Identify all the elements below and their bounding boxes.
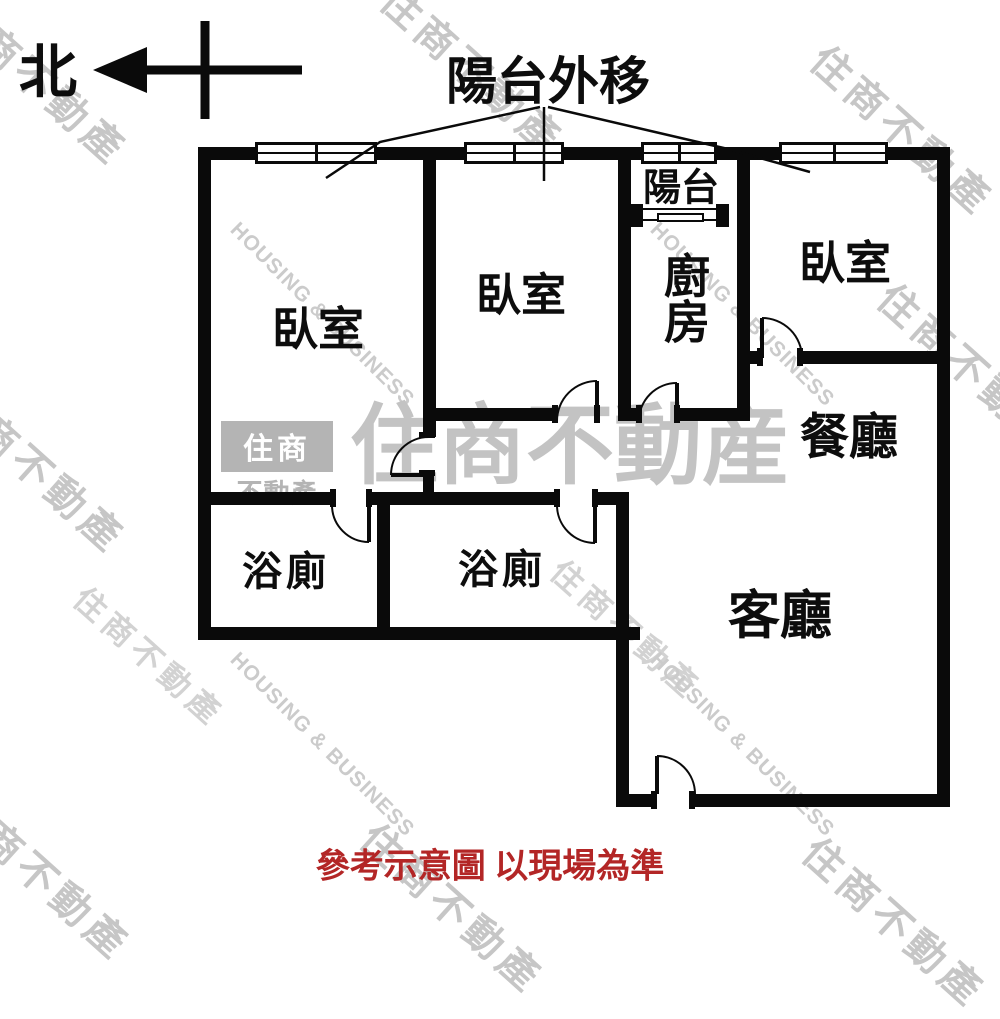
door-bedroom-middle bbox=[557, 381, 597, 421]
door-entry bbox=[657, 756, 695, 794]
room-label-dining: 餐廳 bbox=[800, 398, 898, 469]
room-label-kitchen: 廚房 bbox=[650, 252, 716, 344]
north-arrow-icon bbox=[93, 21, 302, 119]
room-label-bedroom-left: 臥室 bbox=[272, 293, 364, 359]
balcony-note-label: 陽台外移 bbox=[446, 40, 650, 114]
room-label-bedroom-right: 臥室 bbox=[799, 227, 891, 293]
room-label-balcony: 陽台 bbox=[643, 157, 719, 212]
room-label-bath-right: 浴廁 bbox=[458, 537, 546, 595]
door-bath-right bbox=[557, 505, 595, 543]
room-label-bedroom-middle: 臥室 bbox=[476, 259, 566, 324]
door-bath-left bbox=[332, 505, 369, 542]
door-bedroom-right bbox=[762, 318, 802, 358]
door-kitchen bbox=[639, 383, 677, 421]
room-label-living: 客廳 bbox=[728, 574, 832, 649]
floor-plan-page: { "annotations": { "compass": "北", "balc… bbox=[0, 0, 1000, 898]
room-label-bath-left: 浴廁 bbox=[242, 539, 330, 597]
door-bedroom-left bbox=[391, 437, 429, 475]
compass-north-label: 北 bbox=[19, 25, 77, 109]
disclaimer-text: 參考示意圖 以現場為準 bbox=[316, 839, 665, 888]
balcony-note-leader-lines bbox=[326, 107, 810, 181]
